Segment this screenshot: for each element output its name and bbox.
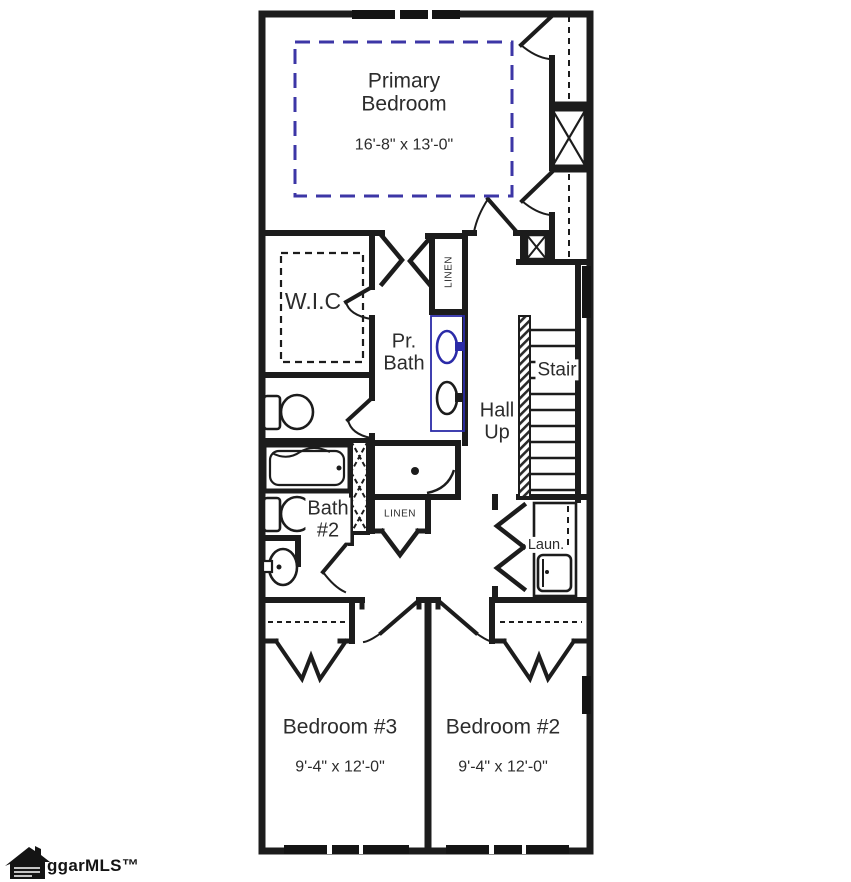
- floor-plan: Primary Bedroom 16'-8" x 13'-0" W.I.C LI…: [0, 0, 851, 882]
- house-logo-icon: [5, 846, 50, 879]
- staircase: [519, 316, 578, 497]
- linen-upper-label: LINEN: [443, 256, 454, 288]
- vanity-sink: [437, 382, 457, 414]
- bathtub-icon: [264, 445, 350, 491]
- wic-label: W.I.C: [285, 289, 341, 315]
- stair-label: Stair: [535, 359, 578, 380]
- bedroom3-label: Bedroom #3 9'-4" x 12'-0": [283, 697, 397, 794]
- vanity-sink-highlighted: [437, 331, 457, 363]
- stair-treads: [530, 330, 578, 490]
- primary-bedroom-dimensions: 16'-8" x 13'-0": [355, 137, 453, 155]
- bedroom2-dimensions: 9'-4" x 12'-0": [446, 759, 560, 777]
- hall-up-label: Hall Up: [480, 400, 514, 445]
- primary-bedroom-label: Primary Bedroom 16'-8" x 13'-0": [355, 52, 453, 173]
- vanity-counter: [431, 316, 464, 431]
- primary-bath-label: Pr. Bath: [383, 331, 424, 376]
- pedestal-sink-icon: [263, 549, 297, 585]
- mls-watermark: ggarMLS™: [47, 856, 139, 876]
- bedroom3-dimensions: 9'-4" x 12'-0": [283, 759, 397, 777]
- toilet-icon-primary: [264, 395, 313, 429]
- linen-lower-label: LINEN: [382, 508, 418, 519]
- bath2-label: Bath #2: [305, 498, 350, 543]
- bedroom2-label: Bedroom #2 9'-4" x 12'-0": [446, 697, 560, 794]
- shower-icon: [372, 443, 458, 497]
- laundry-label: Laun.: [526, 537, 566, 553]
- plumbing-wall: [351, 441, 368, 533]
- chase-boxes: [526, 109, 586, 260]
